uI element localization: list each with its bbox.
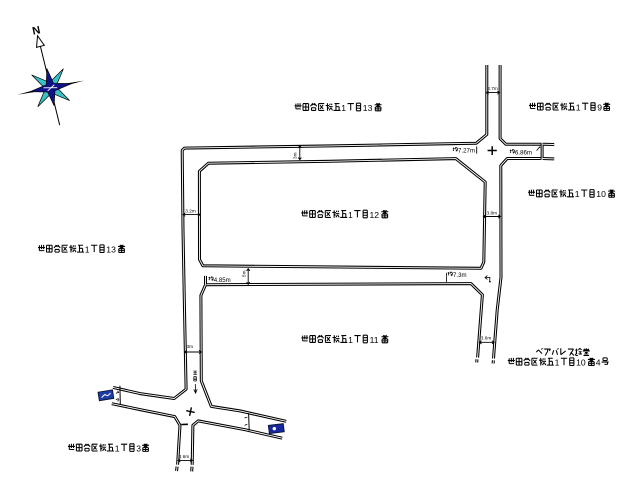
svg-text:5m: 5m xyxy=(242,270,247,277)
svg-text:1: 1 xyxy=(575,189,580,199)
svg-text:3m: 3m xyxy=(293,152,298,159)
svg-text:13: 13 xyxy=(363,103,373,113)
svg-text:1: 1 xyxy=(348,210,353,220)
svg-text:1: 1 xyxy=(115,443,120,453)
svg-text:1: 1 xyxy=(576,102,581,112)
svg-text:12: 12 xyxy=(370,210,380,220)
svg-text:6.86m: 6.86m xyxy=(515,150,532,157)
svg-text:10: 10 xyxy=(596,189,606,199)
svg-text:7.27m: 7.27m xyxy=(458,148,475,155)
svg-text:7.3m: 7.3m xyxy=(453,272,467,279)
svg-text:3: 3 xyxy=(136,443,141,453)
svg-text:9: 9 xyxy=(597,102,602,112)
svg-text:3.6m: 3.6m xyxy=(179,454,190,459)
svg-text:1: 1 xyxy=(341,103,346,113)
svg-text:3.7m: 3.7m xyxy=(487,86,498,91)
svg-text:3m: 3m xyxy=(187,344,194,349)
svg-text:3.6m: 3.6m xyxy=(481,336,492,341)
svg-text:1: 1 xyxy=(555,358,560,368)
svg-text:3.8m: 3.8m xyxy=(487,211,498,216)
svg-text:1: 1 xyxy=(85,245,90,255)
svg-text:4.85m: 4.85m xyxy=(214,277,231,284)
svg-text:3.2m: 3.2m xyxy=(185,209,196,214)
svg-text:1: 1 xyxy=(348,335,353,345)
svg-text:4: 4 xyxy=(596,358,601,368)
svg-text:11: 11 xyxy=(370,335,379,345)
svg-text:10: 10 xyxy=(576,358,586,368)
svg-text:13: 13 xyxy=(106,245,116,255)
